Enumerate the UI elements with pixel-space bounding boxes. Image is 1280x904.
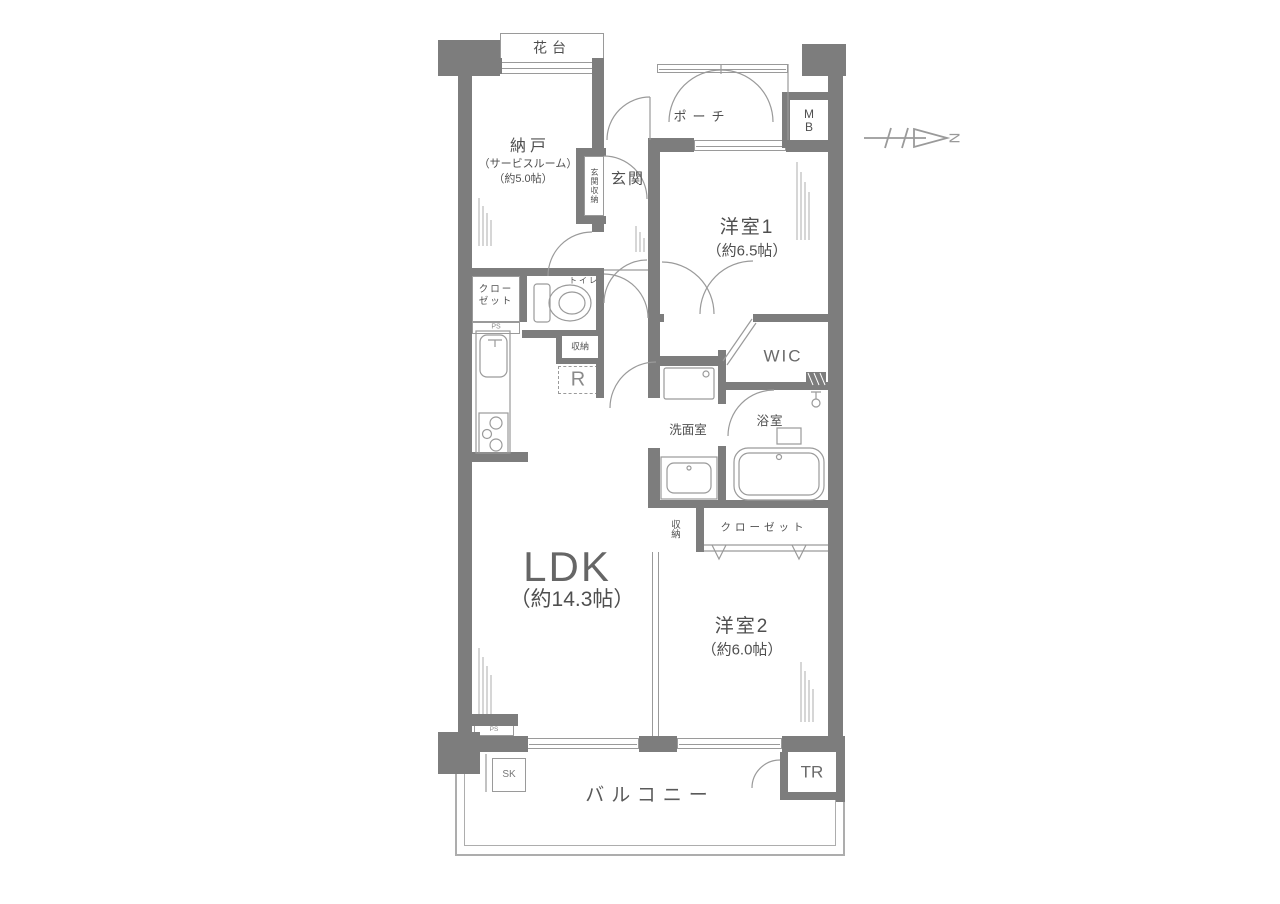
wall-bath-left-a xyxy=(718,390,726,404)
bedroom1-top-window xyxy=(694,140,786,151)
bath-step xyxy=(777,428,801,444)
bedroom1-size-label: （約6.5帖） xyxy=(707,243,788,262)
wall-right xyxy=(828,70,843,736)
wall-tr-bottom xyxy=(780,792,838,800)
washroom-label: 洗面室 xyxy=(669,423,707,439)
nando-sub2-label: （約5.0帖） xyxy=(493,173,552,187)
bedroom1-double-doors xyxy=(662,261,753,314)
storage-mid-label: 収納 xyxy=(571,341,589,352)
wall-top-stub xyxy=(472,58,502,74)
storage-lower-label: 収納 xyxy=(668,520,680,539)
nando-sub1-label: （サービスルーム） xyxy=(479,158,578,172)
wall-kitchen-stub xyxy=(472,452,528,462)
wic-label: WIC xyxy=(763,345,802,366)
hatch-nando xyxy=(479,198,491,246)
wall-utility-bottom xyxy=(648,500,830,508)
hatch-ldk xyxy=(479,648,491,714)
wall-bedroom1-left xyxy=(648,152,660,314)
kitchen-counter xyxy=(476,331,510,453)
compass-north-arrow xyxy=(864,128,947,148)
wall-ps-stub-bottom-left xyxy=(472,714,518,726)
wall-unit-top-b xyxy=(786,140,830,152)
wall-bottom-pier xyxy=(639,736,677,752)
wall-senmen-left-b xyxy=(648,448,660,500)
closet-lower-label: クローゼット xyxy=(721,521,808,534)
toilet-label: トイレ xyxy=(569,276,599,286)
bedroom2-bottom-window xyxy=(677,738,782,749)
bathtub xyxy=(734,448,824,500)
closet-upper-label: クロー ゼット xyxy=(479,284,514,308)
wall-closet-toilet-divider xyxy=(520,276,527,322)
bedroom2-size-label: （約6.0帖） xyxy=(702,642,783,661)
wall-bottom-a xyxy=(472,736,528,752)
flower-stand-window xyxy=(500,62,604,74)
bathroom-label: 浴室 xyxy=(756,414,783,430)
toilet-door xyxy=(604,274,648,318)
wic-sliding-door xyxy=(723,319,756,365)
wall-storage-lower-right xyxy=(696,508,704,552)
kitchen-stove xyxy=(479,413,508,453)
refrigerator-label: R xyxy=(571,368,585,393)
ldk-bottom-window xyxy=(527,738,639,749)
bedroom1-label: 洋室1 xyxy=(720,216,775,240)
wall-closet-toilet-top xyxy=(472,268,604,276)
floor-plan: 花台 ポーチ M B 納戸 （サービスルーム） （約5.0帖） 玄関収納 玄関 … xyxy=(0,0,1280,904)
pipe-space-upper-label: PS xyxy=(491,324,500,333)
wall-toilet-bottom xyxy=(522,330,558,338)
entrance-door xyxy=(607,97,650,140)
washstand xyxy=(661,457,717,499)
hatch-bedroom2 xyxy=(801,662,813,722)
porch-top-rail xyxy=(657,64,788,73)
wall-unit-top-a xyxy=(648,138,694,152)
wall-washer-nook-top xyxy=(655,356,723,366)
flower-stand-label: 花台 xyxy=(533,39,571,57)
washing-machine xyxy=(664,368,714,399)
wall-nando-genkan-divider xyxy=(592,58,604,152)
wall-senmen-left-a xyxy=(648,314,660,398)
toilet-fixture xyxy=(534,284,591,322)
pipe-space-lower-label: PS xyxy=(490,726,499,734)
pipe-space-hatch-wic xyxy=(806,372,826,386)
bedroom2-label: 洋室2 xyxy=(715,615,770,639)
shower-fixture xyxy=(811,392,821,407)
wall-mb-left xyxy=(782,92,790,148)
balcony-label: バルコニー xyxy=(585,784,715,808)
wall-tr-left xyxy=(780,752,788,796)
wall-genkan-storage-bottom xyxy=(576,216,606,224)
slop-sink-label: SK xyxy=(502,769,515,782)
ldk-bedroom2-divider xyxy=(652,552,659,736)
wall-bedroom1-bottom-b xyxy=(753,314,830,322)
genkan-label: 玄関 xyxy=(611,171,645,190)
wall-bath-left-b xyxy=(718,446,726,508)
wall-left xyxy=(458,70,472,738)
trunk-room-label: TR xyxy=(801,761,824,782)
wall-tr-right xyxy=(836,748,845,802)
ldk-label: LDK xyxy=(523,541,611,594)
hatch-bedroom1 xyxy=(797,162,809,240)
porch-label: ポーチ xyxy=(673,109,730,125)
compass-north-label: N xyxy=(944,133,963,144)
closet-lower-rail xyxy=(704,545,828,559)
nando-label: 納戸 xyxy=(510,137,550,157)
wall-divider-stub xyxy=(592,224,604,232)
ldk-size-label: （約14.3帖） xyxy=(510,587,635,613)
entrance-storage-label: 玄関収納 xyxy=(589,168,599,204)
meter-box-label: M B xyxy=(804,108,814,134)
hatch-genkan xyxy=(636,226,644,252)
kitchen-sink xyxy=(480,335,507,377)
